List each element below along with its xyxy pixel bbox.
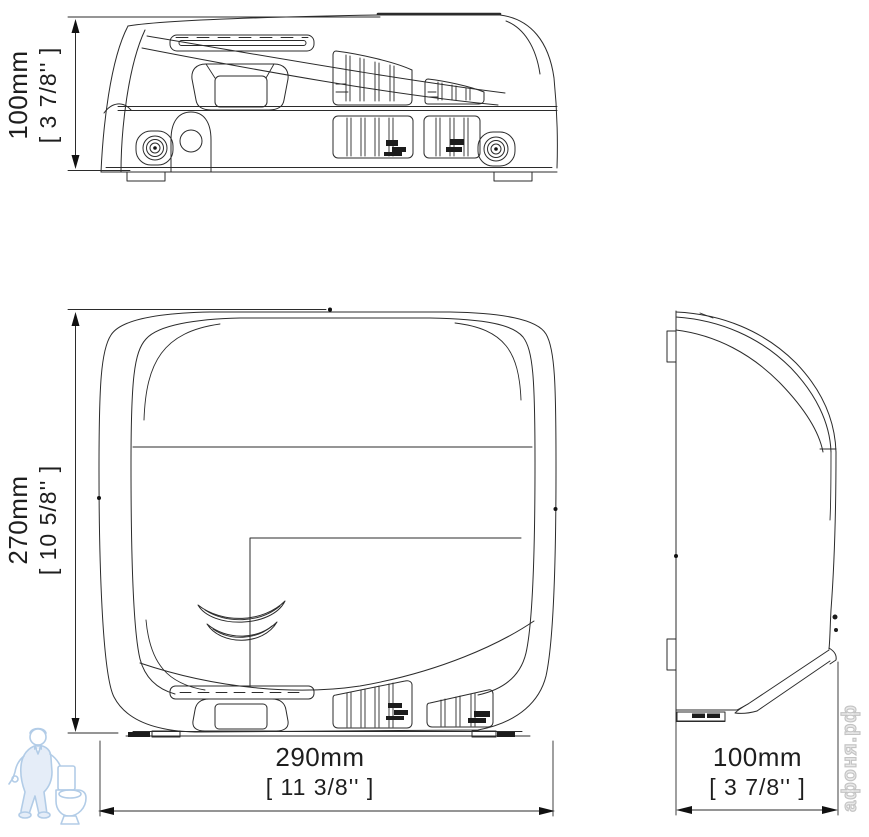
front-view-grille-2 [427, 690, 493, 727]
front-view-height-label: 270mm [ 10 5/8'' ] [3, 425, 63, 615]
side-view-mounting-tab-bottom [667, 639, 676, 670]
front-view-width-metric: 290mm [275, 742, 364, 772]
top-view-height-label: 100mm [ 3 7/8'' ] [3, 10, 63, 180]
front-view-drawing [97, 308, 558, 737]
front-view-internal-step-line [250, 538, 521, 687]
top-view-right-foot [494, 172, 532, 181]
side-view-depth-metric: 100mm [713, 742, 802, 772]
top-view-lower-grille-2 [424, 116, 480, 158]
plumber-mascot-watermark-icon [8, 724, 92, 836]
top-view-right-screw [478, 132, 515, 166]
front-view-height-metric: 270mm [3, 475, 33, 564]
front-view-air-outlet-slot [170, 686, 314, 699]
top-view-mounting-tab [171, 112, 211, 172]
top-view-drawing [101, 14, 557, 181]
front-view-width-imperial: [ 11 3/8'' ] [266, 772, 375, 802]
front-view-sensor-swoosh-logo [198, 601, 285, 640]
top-view-height-metric: 100mm [3, 50, 33, 139]
drawing-linework [0, 0, 869, 837]
top-view-nozzle [192, 64, 288, 110]
top-view-lower-grille-1 [333, 116, 413, 158]
front-view-nozzle [193, 699, 288, 731]
site-watermark-text: афоня.рф [839, 688, 865, 828]
top-view-left-screw [136, 131, 173, 165]
side-view-mounting-tab-top [667, 331, 676, 362]
side-view-drawing [667, 311, 838, 722]
side-view-depth-imperial: [ 3 7/8'' ] [709, 772, 806, 802]
technical-drawing-page: 100mm [ 3 7/8'' ] 270mm [ 10 5/8'' ] 290… [0, 0, 869, 837]
front-view-height-imperial: [ 10 5/8'' ] [33, 465, 63, 575]
top-view-left-foot [127, 172, 165, 181]
top-view-height-imperial: [ 3 7/8'' ] [33, 47, 63, 144]
side-view-depth-label: 100mm [ 3 7/8'' ] [665, 742, 850, 802]
top-view-air-outlet-slot [170, 35, 314, 51]
front-view-width-label: 290mm [ 11 3/8'' ] [195, 742, 445, 802]
